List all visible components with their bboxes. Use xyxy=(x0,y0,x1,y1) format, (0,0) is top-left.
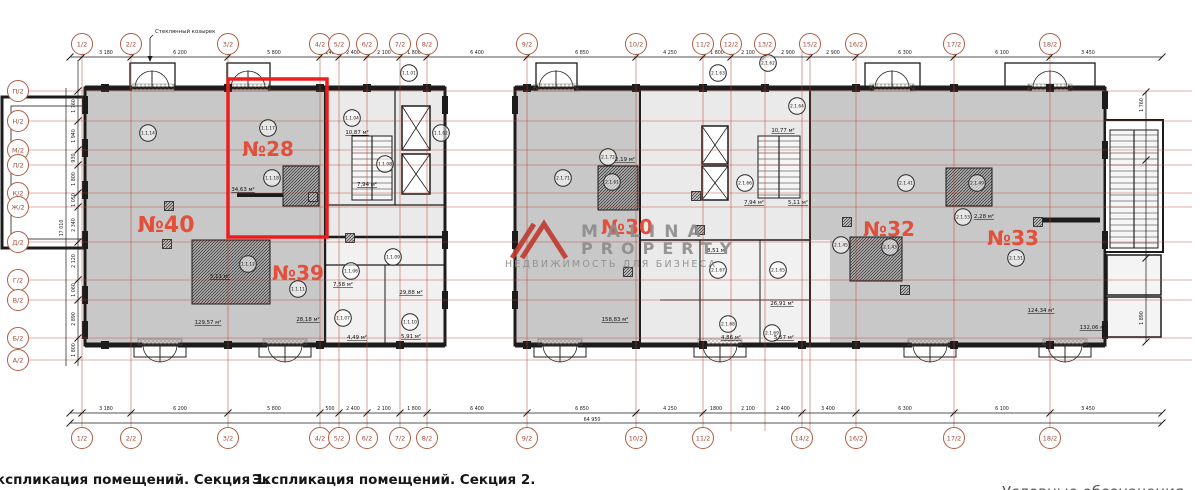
section2-explication-title: Экспликация помещений. Секция 2. xyxy=(252,472,535,488)
interior-column-hatch xyxy=(901,286,910,295)
wall-pilaster xyxy=(512,96,518,114)
dimension-value: 2 100 xyxy=(377,406,391,412)
dimension-value: 2 400 xyxy=(346,406,360,412)
wall-pilaster xyxy=(82,321,88,339)
axis-bubble-label: 4/2 xyxy=(315,434,325,442)
axis-bubble-label: 2/2 xyxy=(126,434,136,442)
entry-mat xyxy=(908,339,952,345)
axis-bubble-label: Ж/2 xyxy=(11,203,24,211)
axis-bubble-label: 18/2 xyxy=(1043,40,1058,48)
dimension-value: 2 890 xyxy=(71,312,77,326)
room-area-label: 2,28 м² xyxy=(974,213,994,220)
dimension-value: 1 060 xyxy=(71,283,77,297)
axis-bubble-label: Н/2 xyxy=(12,117,23,125)
unit-number-label: 2.1.49 xyxy=(970,181,984,187)
equipment-block-hatch xyxy=(192,240,270,304)
dimension-value: 2 400 xyxy=(776,406,790,412)
dimension-value: 3 450 xyxy=(1081,406,1095,412)
axis-bubble-label: 2/2 xyxy=(126,40,136,48)
dimension-value: 3 180 xyxy=(99,50,113,56)
interior-column-hatch xyxy=(309,193,318,202)
unit-number-label: 2.1.61 xyxy=(605,180,619,186)
dimension-value: 500 xyxy=(325,406,334,412)
entry-mat xyxy=(870,84,914,91)
equipment-block-hatch xyxy=(946,168,992,206)
axis-bubble-label: 11/2 xyxy=(696,434,711,442)
dimension-value: 1 800 xyxy=(71,172,77,186)
unit-number-label: 2.1.51 xyxy=(1009,256,1023,262)
unit-number-label: 1.1.07 xyxy=(336,316,350,322)
room-area-label: 29,88 м² xyxy=(399,289,422,296)
room-number[interactable]: №39 xyxy=(272,261,324,285)
axis-bubble-label: 4/2 xyxy=(315,40,325,48)
axis-bubble-label: 10/2 xyxy=(629,40,644,48)
axis-bubble-label: 10/2 xyxy=(629,434,644,442)
axis-bubble-label: 8/2 xyxy=(422,434,432,442)
room-number[interactable]: №28 xyxy=(242,137,294,161)
axis-bubble-label: 1/2 xyxy=(77,434,87,442)
entry-mat xyxy=(226,84,270,91)
unit-number-label: 1.1.18 xyxy=(265,176,279,182)
entrance-door-swing xyxy=(720,345,737,362)
legend-title-partial: Условные обозначения xyxy=(1002,483,1184,490)
axis-bubble-label: М/2 xyxy=(12,146,24,154)
axis-bubble-label: 15/2 xyxy=(803,40,818,48)
entry-mat xyxy=(130,84,174,91)
axis-bubble-label: 7/2 xyxy=(395,434,405,442)
dimension-value: 2 100 xyxy=(377,50,391,56)
unit-number-label: 2.1.43 xyxy=(883,245,897,251)
dimension-value: 6 200 xyxy=(173,406,187,412)
dimension-value: 1 050 xyxy=(71,193,77,207)
dimension-value: 6 400 xyxy=(470,406,484,412)
room-area-label: 7,94 м² xyxy=(744,199,764,206)
section1-explication-title: Экспликация помещений. Секция 1. xyxy=(0,472,269,488)
right-annex-balcony-1 xyxy=(1107,255,1161,295)
dimension-value: 6 200 xyxy=(173,50,187,56)
room-area-label: 2,19 м² xyxy=(615,156,635,163)
dimension-value: 6 100 xyxy=(995,50,1009,56)
room-area-label: 34,63 м² xyxy=(231,186,254,193)
axis-bubble-label: 6/2 xyxy=(362,40,372,48)
dimension-value: 6 100 xyxy=(995,406,1009,412)
axis-bubble-label: 3/2 xyxy=(223,434,233,442)
unit-number-label: 1.1.12 xyxy=(241,262,255,268)
room-area-label: 28,18 м² xyxy=(296,316,319,323)
axis-bubble-label: 16/2 xyxy=(849,434,864,442)
axis-bubble-label: 6/2 xyxy=(362,434,372,442)
canopy-callout-label: Стеклянный козырек xyxy=(155,28,216,35)
axis-bubble-label: 7/2 xyxy=(395,40,405,48)
unit-number-label: 1.1.04 xyxy=(345,116,359,122)
interior-column-hatch xyxy=(163,240,172,249)
axis-bubble-label: 5/2 xyxy=(334,40,344,48)
column xyxy=(101,341,109,349)
wall-pilaster xyxy=(82,286,88,304)
unit-number-label: 2.1.68 xyxy=(721,322,735,328)
entrance-door-swing xyxy=(143,345,160,362)
dimension-value: 6 300 xyxy=(898,406,912,412)
dimension-value: 4 250 xyxy=(663,50,677,56)
unit-number-label: 2.1.41 xyxy=(899,181,913,187)
unit-number-label: 1.1.06 xyxy=(344,269,358,275)
entrance-door-swing xyxy=(560,345,577,362)
dimension-value: 3 400 xyxy=(821,406,835,412)
axis-bubble-label: 14/2 xyxy=(795,434,810,442)
axis-bubble-label: П/2 xyxy=(12,87,23,95)
dimension-value: 5 800 xyxy=(267,406,281,412)
room-area-label: 4,49 м² xyxy=(347,334,367,341)
room-area-label: 10,87 м² xyxy=(345,129,368,136)
dimension-value: 930 xyxy=(71,153,77,162)
dimension-value: 1 760 xyxy=(1139,98,1145,112)
unit-number-label: 2.1.65 xyxy=(771,268,785,274)
axis-bubble-label: 11/2 xyxy=(696,40,711,48)
entrance-door-swing xyxy=(285,345,302,362)
entry-mat xyxy=(538,339,582,345)
axis-bubble-label: 5/2 xyxy=(334,434,344,442)
room-area-label: 4,86 м² xyxy=(721,334,741,341)
wall-pilaster xyxy=(82,96,88,114)
room-number[interactable]: №32 xyxy=(863,217,915,241)
room-area-label: 129,57 м² xyxy=(195,319,222,326)
dimension-value: 1800 xyxy=(710,406,722,412)
entrance-door-swing xyxy=(1065,345,1082,362)
dimension-value: 1 800 xyxy=(407,406,421,412)
dimension-value: 1 940 xyxy=(71,129,77,143)
axis-bubble-label: 3/2 xyxy=(223,40,233,48)
unit-number-label: 1.1.08 xyxy=(378,162,392,168)
wall-pilaster xyxy=(442,231,448,249)
room-number[interactable]: №40 xyxy=(137,213,194,238)
room-area-label: 7,58 м² xyxy=(333,281,353,288)
dimension-value: 2 400 xyxy=(346,50,360,56)
room-area-label: 132,06 м² xyxy=(1080,324,1107,331)
room-area-label: 5,57 м² xyxy=(774,334,794,341)
room-area-label: 5,11 м² xyxy=(788,199,808,206)
dimension-value: 6 300 xyxy=(898,50,912,56)
dimension-value: 6 400 xyxy=(470,50,484,56)
dimension-value: 1 890 xyxy=(1139,311,1145,325)
axis-bubble-label: 1/2 xyxy=(77,40,87,48)
unit-number-label: 2.1.66 xyxy=(738,181,752,187)
entrance-door-swing xyxy=(930,345,947,362)
dimension-value: 3 180 xyxy=(99,406,113,412)
axis-bubble-label: В/2 xyxy=(13,296,24,304)
dimension-value: 2 900 xyxy=(781,50,795,56)
unit-number-label: 1.1.11 xyxy=(291,287,305,293)
wall-pilaster xyxy=(1102,91,1108,109)
wall-pilaster xyxy=(1102,231,1108,249)
axis-bubble-label: 9/2 xyxy=(522,434,532,442)
dimension-value: 4 250 xyxy=(663,406,677,412)
unit-number-label: 1.1.09 xyxy=(386,255,400,261)
dimension-value: 1 760 xyxy=(71,99,77,113)
room-number[interactable]: №33 xyxy=(987,226,1039,250)
axis-bubble-label: Л/2 xyxy=(12,161,23,169)
axis-bubble-label: Г/2 xyxy=(13,276,23,284)
axis-bubble-label: 12/2 xyxy=(724,40,739,48)
canopy-callout-arrow xyxy=(148,56,153,62)
axis-bubble-label: 8/2 xyxy=(422,40,432,48)
room-area-label: 158,83 м² xyxy=(602,316,629,323)
watermark-tagline: НЕДВИЖИМОСТЬ ДЛЯ БИЗНЕСА xyxy=(505,259,717,270)
watermark-brand-line2: PROPERTY xyxy=(581,239,739,258)
unit-number-label: 2.1.71 xyxy=(556,176,570,182)
unit-number-label: 1.1.01 xyxy=(402,71,416,77)
dimension-value: 2 100 xyxy=(741,50,755,56)
entrance-door-swing xyxy=(913,345,930,362)
room-area-label: 124,34 м² xyxy=(1028,307,1055,314)
axis-bubble-label: 17/2 xyxy=(947,434,962,442)
entry-mat xyxy=(263,339,307,345)
wall-pilaster xyxy=(82,231,88,249)
wall-pilaster xyxy=(82,181,88,199)
dimension-value: 1 800 xyxy=(710,50,724,56)
dimension-value: 2 340 xyxy=(71,218,77,232)
axis-bubble-label: Д/2 xyxy=(12,238,23,246)
dimension-value: 3 450 xyxy=(1081,50,1095,56)
axis-bubble-label: 17/2 xyxy=(947,40,962,48)
dimension-value: 6 850 xyxy=(575,50,589,56)
dimension-value: 5 800 xyxy=(267,50,281,56)
unit-number-label: 1.1.10 xyxy=(403,320,417,326)
axis-bubble-label: 16/2 xyxy=(849,40,864,48)
wall-pilaster xyxy=(442,96,448,114)
room-area-label: 5,11 м² xyxy=(210,273,230,280)
dimension-value: 2 120 xyxy=(71,254,77,268)
axis-bubble-label: 18/2 xyxy=(1043,434,1058,442)
unit-number-label: 2.1.64 xyxy=(790,104,804,110)
floor-plan-canvas: 3 1806 2005 8002402 4002 1001 8006 4006 … xyxy=(0,0,1200,490)
interior-column-hatch xyxy=(165,202,174,211)
room-area-label: 10,77 м² xyxy=(771,127,794,134)
entrance-door-swing xyxy=(543,345,560,362)
entry-mat xyxy=(138,339,182,345)
room-area-label: 26,91 м² xyxy=(770,300,793,307)
interior-column-hatch xyxy=(346,234,355,243)
overall-height-dimension: 17 010 xyxy=(59,220,65,237)
axis-bubble-label: Б/2 xyxy=(13,334,24,342)
unit-number-label: 2.1.62 xyxy=(761,61,775,67)
unit-number-label: 2.1.45 xyxy=(834,243,848,249)
wall-pilaster xyxy=(82,139,88,157)
room-area-label: 5,91 м² xyxy=(401,333,421,340)
interior-column-hatch xyxy=(843,218,852,227)
unit-number-label: 2.1.63 xyxy=(711,71,725,77)
entrance-door-swing xyxy=(160,345,177,362)
axis-bubble-label: 13/2 xyxy=(758,40,773,48)
dimension-value: 1 800 xyxy=(71,343,77,357)
dimension-value: 6 850 xyxy=(575,406,589,412)
unit-number-label: 1.1.17 xyxy=(261,126,275,132)
entry-mat xyxy=(534,84,578,91)
axis-bubble-label: 9/2 xyxy=(522,40,532,48)
unit-number-label: 2.1.72 xyxy=(601,155,615,161)
room-area-label: 7,94 м² xyxy=(357,181,377,188)
unit-number-label: 2.1.53 xyxy=(956,215,970,221)
axis-bubble-label: А/2 xyxy=(13,356,24,364)
dimension-value: 2 900 xyxy=(826,50,840,56)
dimension-value: 2 100 xyxy=(741,406,755,412)
right-annex-balcony-2 xyxy=(1107,297,1161,337)
overall-width-dimension: 64 950 xyxy=(584,417,601,423)
unit-number-label: 1.1.14 xyxy=(141,131,155,137)
unit-number-label: 1.1.02 xyxy=(434,131,448,137)
entrance-door-swing xyxy=(268,345,285,362)
